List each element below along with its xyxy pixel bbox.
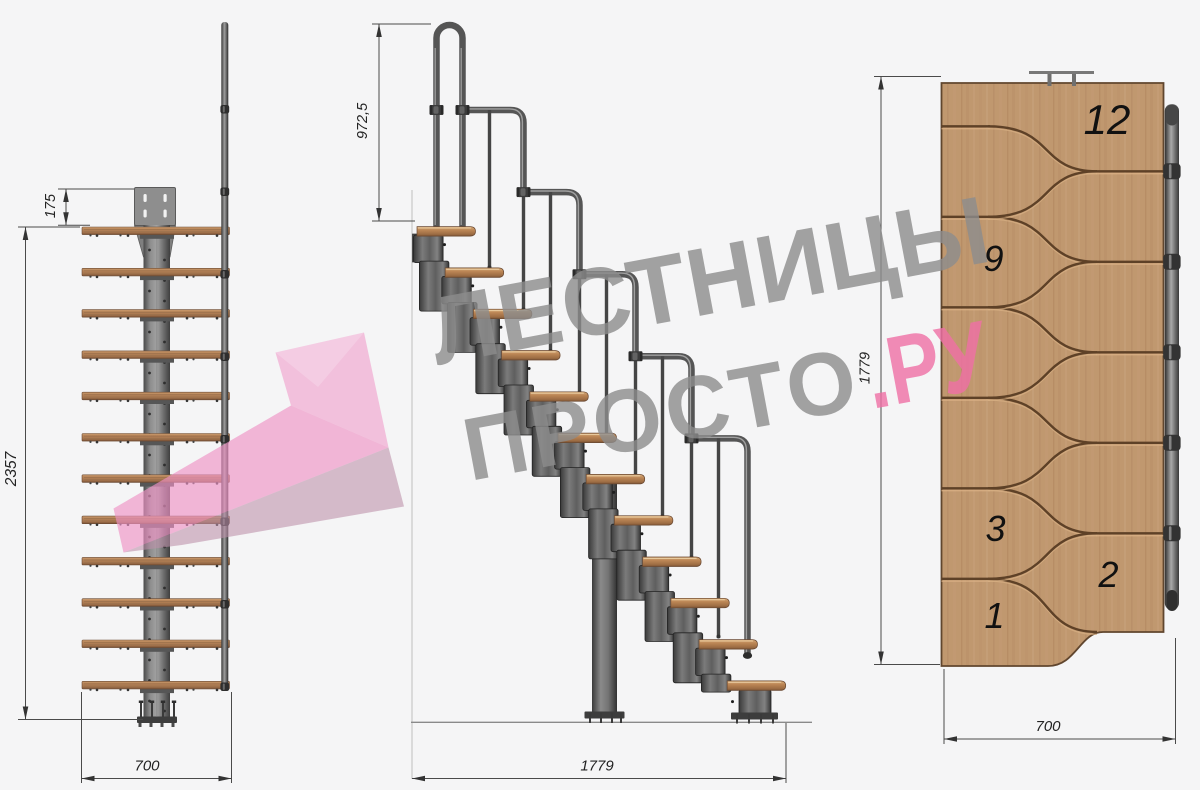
- svg-text:972,5: 972,5: [355, 102, 371, 139]
- svg-text:700: 700: [134, 758, 160, 775]
- svg-text:1779: 1779: [580, 758, 614, 775]
- svg-text:2: 2: [1097, 554, 1118, 595]
- svg-text:12: 12: [1084, 96, 1131, 143]
- svg-text:175: 175: [43, 193, 59, 218]
- svg-text:3: 3: [985, 508, 1005, 549]
- svg-text:1: 1: [984, 595, 1004, 636]
- svg-text:2357: 2357: [3, 450, 20, 487]
- svg-text:700: 700: [1035, 718, 1061, 735]
- svg-text:.РУ: .РУ: [856, 300, 998, 429]
